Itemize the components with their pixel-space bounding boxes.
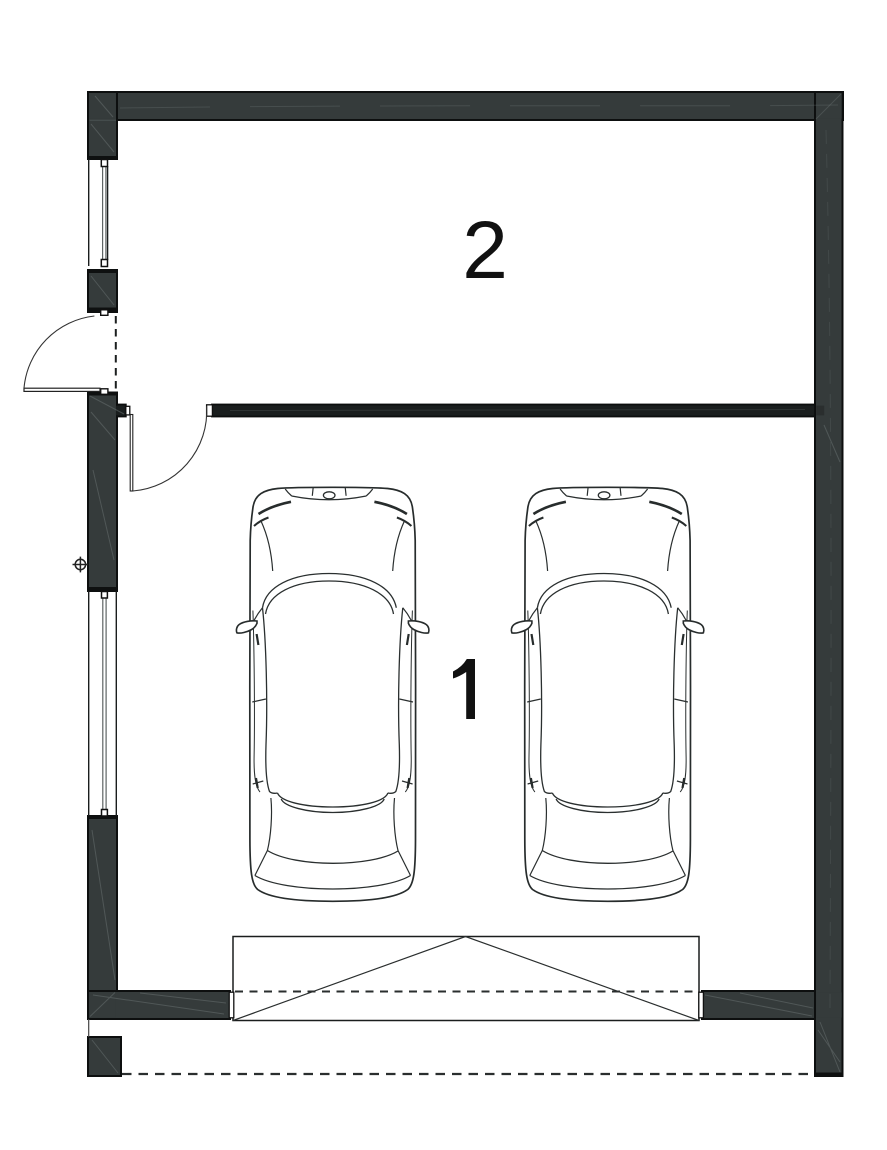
svg-text:2: 2 — [462, 205, 508, 296]
